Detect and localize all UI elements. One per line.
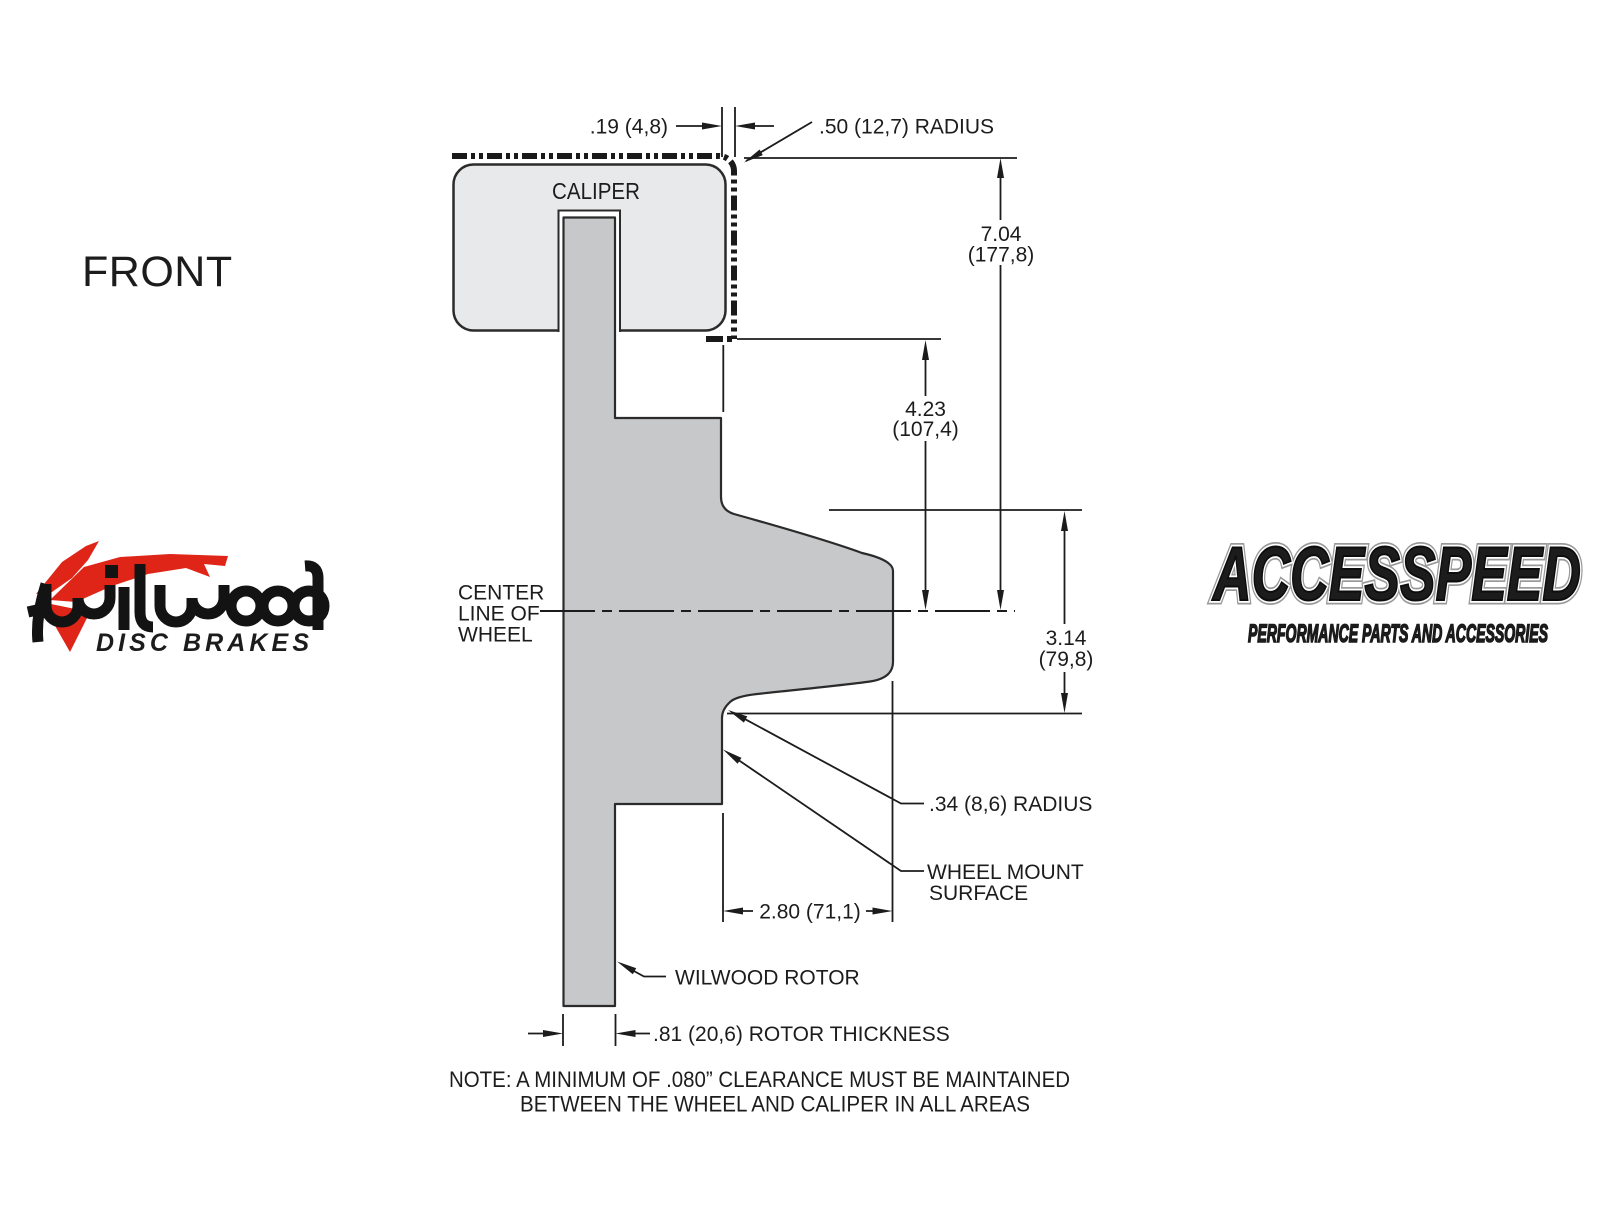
svg-text:.19 (4,8): .19 (4,8) [590,116,668,139]
svg-text:WHEEL MOUNT: WHEEL MOUNT [927,861,1084,884]
svg-text:.50 (12,7) RADIUS: .50 (12,7) RADIUS [819,116,994,139]
svg-text:SURFACE: SURFACE [929,882,1028,905]
svg-text:3.14: 3.14 [1046,627,1087,650]
svg-text:(107,4): (107,4) [892,418,959,441]
svg-text:2.80 (71,1): 2.80 (71,1) [759,901,861,924]
svg-text:.81 (20,6) ROTOR THICKNESS: .81 (20,6) ROTOR THICKNESS [653,1023,950,1046]
svg-text:PERFORMANCE PARTS AND ACCESSOR: PERFORMANCE PARTS AND ACCESSORIES [1248,620,1548,648]
svg-text:(79,8): (79,8) [1039,648,1094,671]
svg-text:WILWOOD ROTOR: WILWOOD ROTOR [675,967,860,990]
svg-text:(177,8): (177,8) [968,244,1035,267]
svg-text:ACCESSPEED: ACCESSPEED [1212,532,1581,617]
svg-text:CENTER: CENTER [458,582,544,605]
svg-text:BETWEEN THE WHEEL AND CALIPER: BETWEEN THE WHEEL AND CALIPER IN ALL ARE… [520,1092,1030,1117]
svg-text:FRONT: FRONT [82,248,233,296]
svg-text:LINE OF: LINE OF [458,603,540,626]
svg-text:CALIPER: CALIPER [552,178,640,204]
svg-text:WHEEL: WHEEL [458,624,533,647]
svg-text:NOTE: A MINIMUM OF .080” CLEAR: NOTE: A MINIMUM OF .080” CLEARANCE MUST … [449,1067,1070,1092]
svg-text:.34 (8,6) RADIUS: .34 (8,6) RADIUS [929,793,1092,816]
